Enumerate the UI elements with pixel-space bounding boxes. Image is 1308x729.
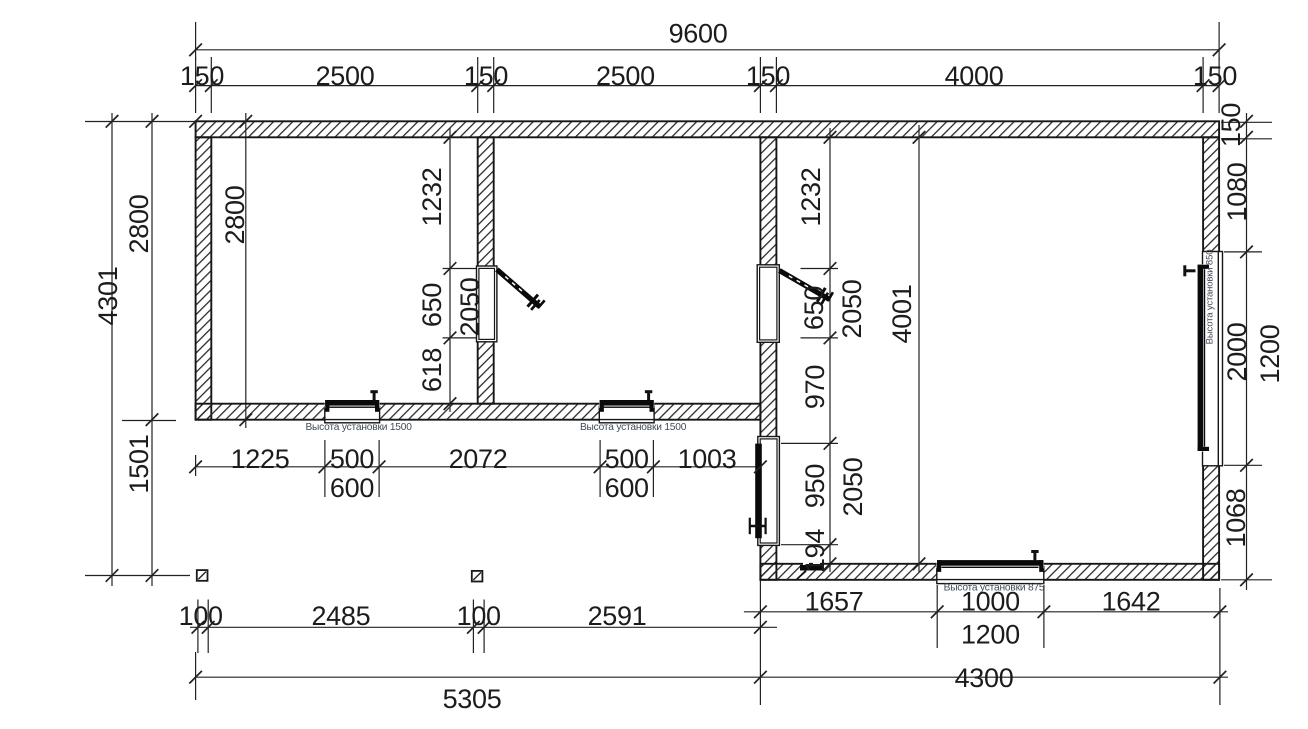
svg-text:2000: 2000	[1222, 323, 1252, 382]
svg-text:194: 194	[800, 529, 830, 573]
svg-text:1225: 1225	[231, 444, 290, 474]
svg-text:150: 150	[746, 61, 790, 91]
svg-text:2591: 2591	[588, 601, 647, 631]
svg-text:600: 600	[605, 473, 649, 503]
svg-text:1003: 1003	[678, 444, 737, 474]
svg-text:2050: 2050	[837, 280, 867, 339]
svg-text:4300: 4300	[955, 663, 1014, 693]
svg-text:100: 100	[179, 601, 223, 631]
svg-text:1200: 1200	[961, 620, 1020, 650]
svg-text:500: 500	[330, 444, 374, 474]
svg-text:500: 500	[605, 444, 649, 474]
svg-text:150: 150	[464, 61, 508, 91]
svg-text:4000: 4000	[945, 61, 1004, 91]
svg-text:650: 650	[799, 286, 829, 330]
svg-text:650: 650	[417, 283, 447, 327]
svg-text:150: 150	[1193, 61, 1237, 91]
svg-text:2500: 2500	[316, 61, 375, 91]
svg-text:2072: 2072	[449, 444, 508, 474]
svg-text:2050: 2050	[455, 278, 485, 337]
svg-text:2800: 2800	[220, 186, 250, 245]
svg-text:1232: 1232	[417, 168, 447, 227]
svg-text:2050: 2050	[838, 458, 868, 517]
svg-text:5305: 5305	[443, 684, 502, 714]
svg-text:1232: 1232	[796, 168, 826, 227]
svg-text:1000: 1000	[961, 587, 1020, 617]
svg-text:1080: 1080	[1222, 163, 1252, 222]
svg-text:600: 600	[330, 473, 374, 503]
svg-text:2485: 2485	[311, 601, 370, 631]
svg-text:1068: 1068	[1221, 489, 1251, 548]
svg-text:970: 970	[800, 365, 830, 409]
svg-text:150: 150	[1216, 103, 1246, 147]
svg-text:Высота установки 1500: Высота установки 1500	[580, 422, 687, 433]
svg-text:Высота установки 850: Высота установки 850	[1205, 250, 1216, 345]
svg-text:150: 150	[180, 61, 224, 91]
svg-text:4301: 4301	[93, 267, 123, 326]
svg-text:9600: 9600	[669, 19, 728, 49]
svg-text:1200: 1200	[1255, 325, 1285, 384]
svg-text:1657: 1657	[805, 587, 864, 617]
svg-text:2500: 2500	[596, 61, 655, 91]
svg-text:Высота установки 1500: Высота установки 1500	[305, 422, 412, 433]
svg-text:4001: 4001	[887, 285, 917, 344]
svg-text:1642: 1642	[1102, 587, 1161, 617]
svg-text:2800: 2800	[124, 195, 154, 254]
svg-text:618: 618	[417, 348, 447, 392]
svg-text:1501: 1501	[124, 435, 154, 494]
svg-text:950: 950	[800, 464, 830, 508]
svg-text:100: 100	[457, 601, 501, 631]
